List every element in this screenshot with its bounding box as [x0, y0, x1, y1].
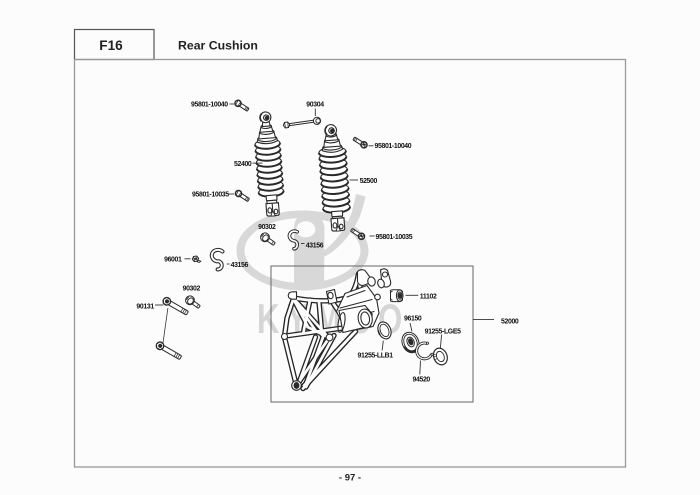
svg-text:90302: 90302 — [258, 224, 276, 231]
svg-text:F16: F16 — [99, 38, 123, 53]
svg-text:52500: 52500 — [360, 178, 378, 185]
svg-text:96150: 96150 — [404, 315, 422, 322]
svg-text:90131: 90131 — [136, 303, 154, 310]
svg-text:- 97 -: - 97 - — [339, 473, 361, 484]
svg-text:95801-10035: 95801-10035 — [192, 192, 229, 199]
svg-text:95801-10040: 95801-10040 — [191, 102, 228, 109]
svg-text:91255-LGE5: 91255-LGE5 — [425, 329, 461, 336]
svg-text:95801-10040: 95801-10040 — [375, 143, 412, 150]
svg-text:90304: 90304 — [306, 102, 324, 109]
svg-text:91255-LLB1: 91255-LLB1 — [358, 353, 394, 360]
svg-text:96001: 96001 — [164, 257, 182, 264]
svg-text:11102: 11102 — [420, 293, 437, 300]
svg-text:Rear Cushion: Rear Cushion — [178, 39, 258, 53]
svg-text:90302: 90302 — [183, 286, 201, 293]
svg-text:43156: 43156 — [231, 262, 249, 269]
svg-text:52400: 52400 — [234, 161, 252, 168]
svg-text:95801-10035: 95801-10035 — [376, 234, 413, 241]
svg-text:52000: 52000 — [501, 318, 519, 325]
svg-text:94520: 94520 — [413, 377, 431, 384]
svg-text:43156: 43156 — [306, 242, 324, 249]
